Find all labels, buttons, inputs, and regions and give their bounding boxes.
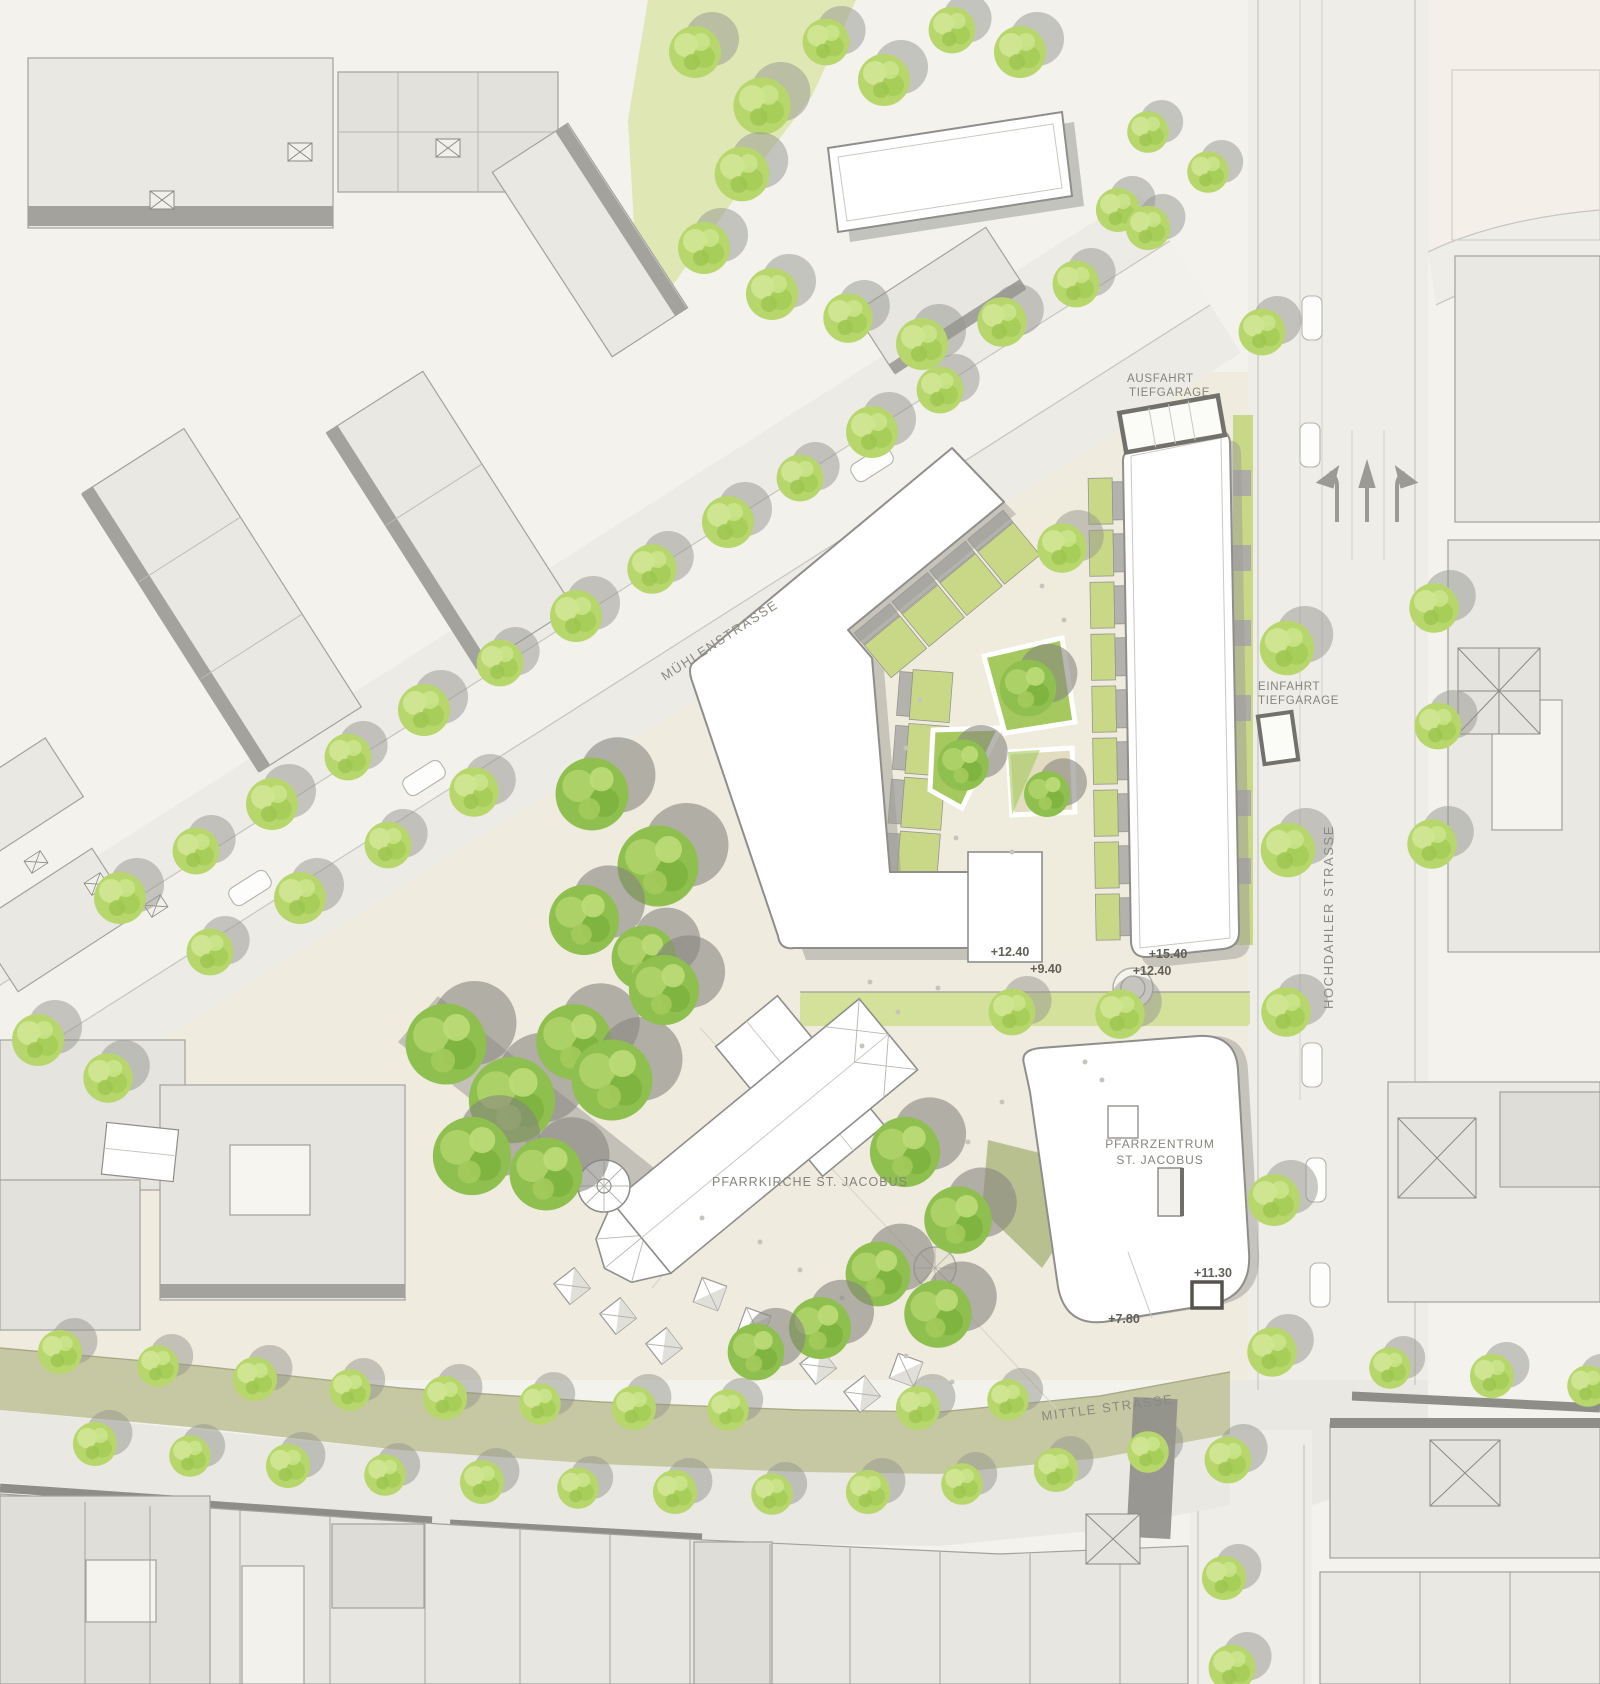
label-garage-exit-1: AUSFAHRT <box>1127 373 1194 385</box>
label-garage-exit-2: TIEFGARAGE <box>1129 387 1210 399</box>
level-parish-upper: +11.30 <box>1194 1266 1232 1280</box>
level-courtyard-main: +12.40 <box>991 945 1030 959</box>
label-parish-2: ST. JACOBUS <box>1116 1153 1203 1167</box>
label-hochdahler: HOCHDAHLER STRASSE <box>1321 825 1336 1009</box>
level-bar-main: +15.40 <box>1149 947 1188 961</box>
site-plan-canvas: MÜHLENSTRASSE HOCHDAHLER STRASSE MITTLE … <box>0 0 1600 1684</box>
label-parish-1: PFARRZENTRUM <box>1105 1137 1214 1151</box>
building-bar-east <box>1123 431 1250 968</box>
site-plan: MÜHLENSTRASSE HOCHDAHLER STRASSE MITTLE … <box>0 0 1600 1684</box>
label-church: PFARRKIRCHE ST. JACOBUS <box>712 1175 908 1189</box>
label-garage-entry-2: TIEFGARAGE <box>1258 695 1339 707</box>
level-courtyard-low: +9.40 <box>1030 962 1062 976</box>
level-parish-lower: +7.80 <box>1108 1312 1140 1326</box>
label-garage-entry-1: EINFAHRT <box>1258 681 1320 693</box>
level-bar-low: +12.40 <box>1133 964 1172 978</box>
garage-entry-ramp <box>1258 712 1298 764</box>
